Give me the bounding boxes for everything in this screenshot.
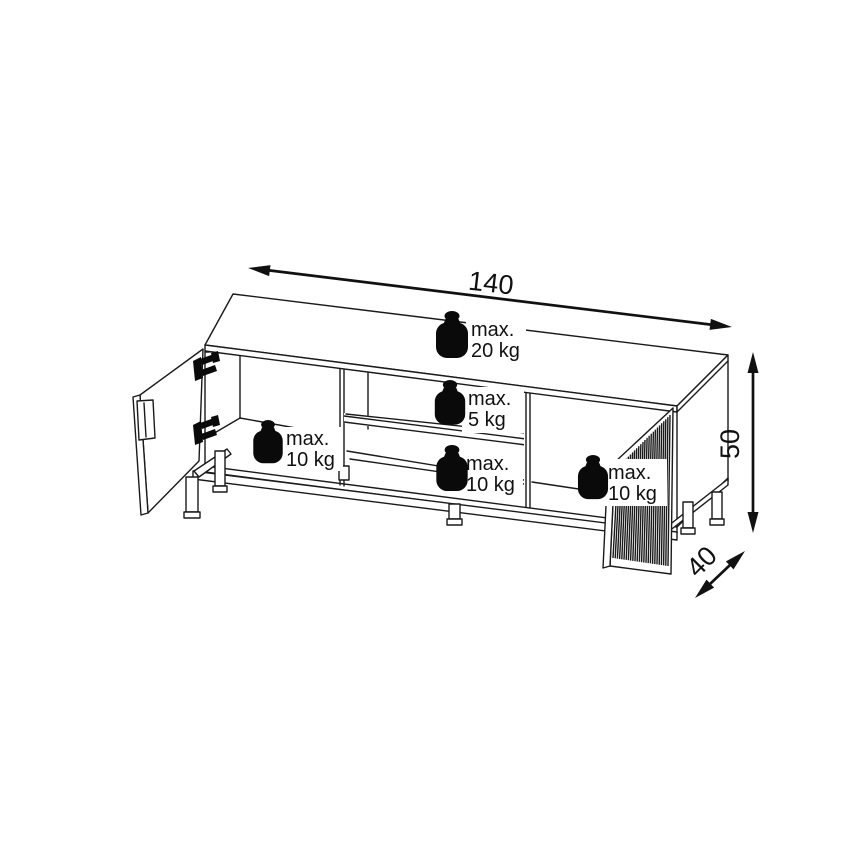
back-leg-left: [213, 451, 227, 492]
load-label-line1: max.: [468, 388, 511, 410]
left-door-open: [133, 349, 220, 515]
front-leg-right: [681, 502, 695, 534]
furniture-dimension-diagram: max. 20 kg max. 5 kg max. 10 kg max. 10 …: [0, 0, 868, 868]
front-leg-middle: [447, 504, 462, 525]
load-label-line2: 5 kg: [468, 409, 506, 431]
load-label-middle-bottom: max. 10 kg: [466, 453, 515, 496]
load-label-line2: 10 kg: [286, 449, 335, 471]
width-dimension-value: 140: [467, 266, 515, 301]
load-label-line2: 10 kg: [466, 474, 515, 496]
load-label-left-compartment: max. 10 kg: [286, 428, 335, 471]
diagram-svg: max. 20 kg max. 5 kg max. 10 kg max. 10 …: [0, 0, 868, 868]
weight-icon: [436, 311, 468, 358]
load-label-line2: 10 kg: [608, 483, 657, 505]
back-leg-right: [710, 492, 724, 525]
height-dimension-value: 50: [715, 429, 745, 459]
load-label-top: max. 20 kg: [471, 319, 520, 362]
load-label-line1: max.: [608, 462, 651, 484]
load-label-line1: max.: [471, 319, 514, 341]
door-handle: [137, 400, 155, 440]
load-label-line1: max.: [286, 428, 329, 450]
dimension-depth: 40: [680, 540, 745, 598]
load-label-right-compartment: max. 10 kg: [608, 462, 657, 505]
load-label-line2: 20 kg: [471, 340, 520, 362]
load-label-middle-shelf: max. 5 kg: [468, 388, 511, 431]
front-leg-left: [184, 477, 200, 518]
load-label-line1: max.: [466, 453, 509, 475]
